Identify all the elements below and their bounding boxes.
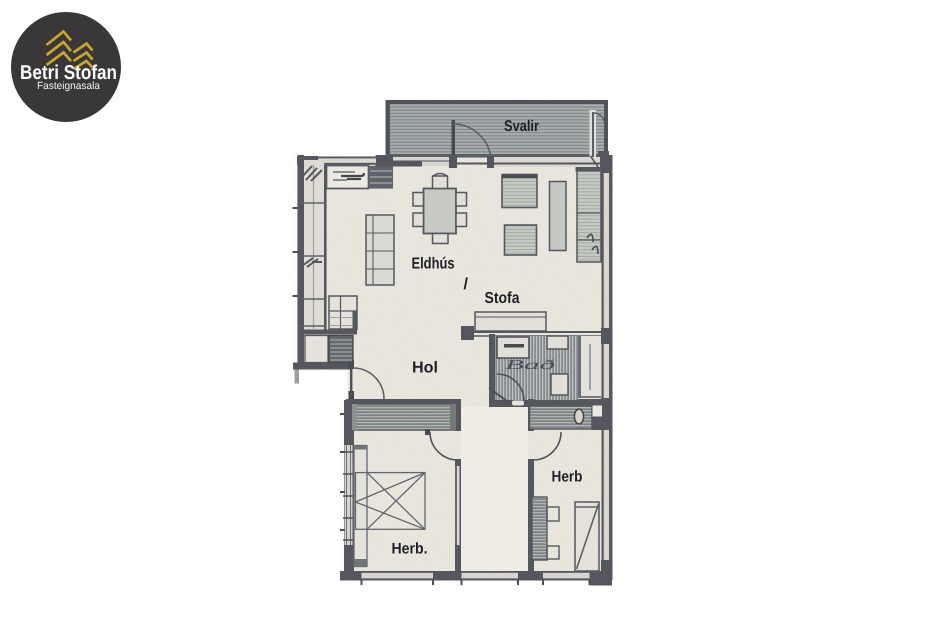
svg-text:Fasteignasala: Fasteignasala bbox=[37, 80, 100, 92]
